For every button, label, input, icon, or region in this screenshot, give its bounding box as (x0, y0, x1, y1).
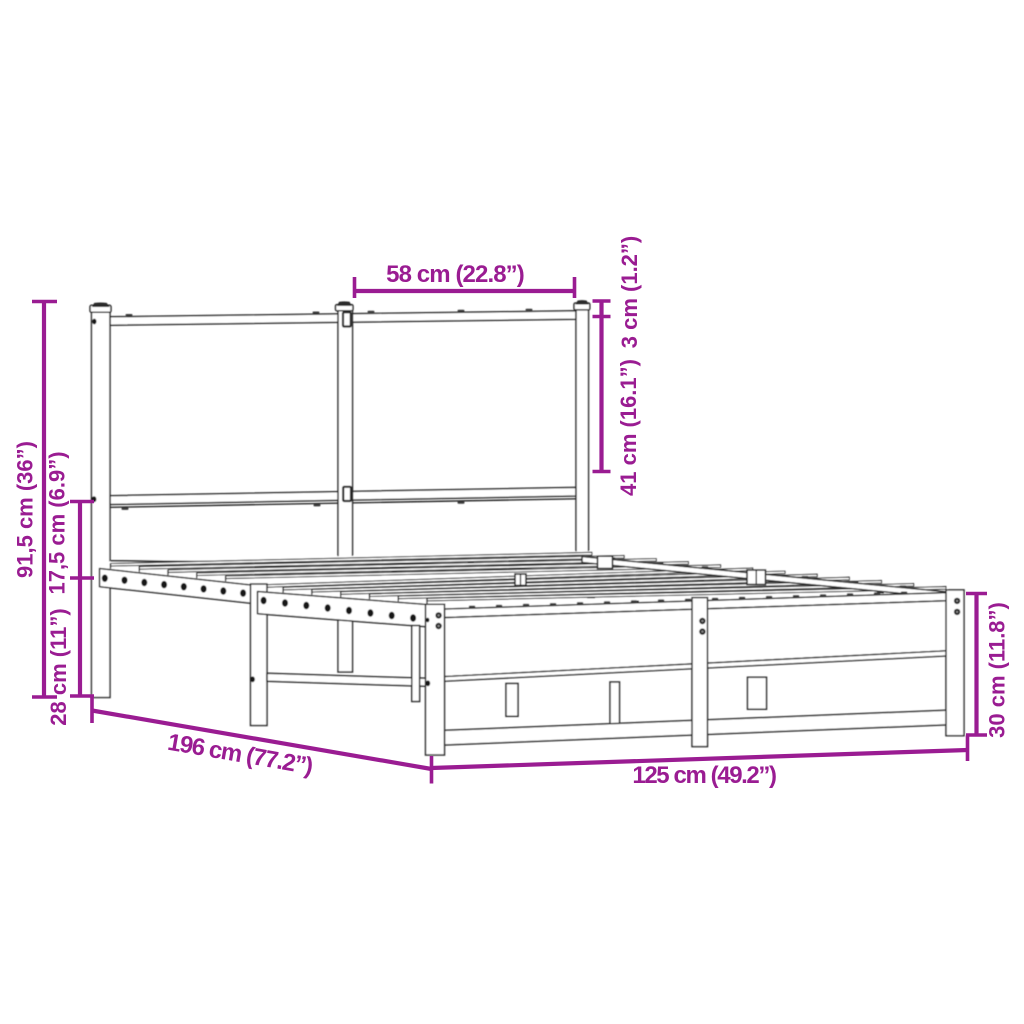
svg-text:30 cm (11.8”): 30 cm (11.8”) (985, 602, 1010, 738)
svg-text:91,5 cm (36”): 91,5 cm (36”) (13, 441, 38, 578)
svg-text:28 cm (11”): 28 cm (11”) (46, 608, 71, 725)
svg-text:125 cm (49.2”): 125 cm (49.2”) (632, 762, 776, 789)
svg-text:41 cm (16.1”): 41 cm (16.1”) (616, 359, 641, 496)
svg-text:58 cm (22.8”): 58 cm (22.8”) (386, 261, 524, 288)
svg-text:17,5 cm (6.9”): 17,5 cm (6.9”) (45, 451, 70, 594)
svg-text:3 cm (1.2”): 3 cm (1.2”) (617, 236, 642, 349)
